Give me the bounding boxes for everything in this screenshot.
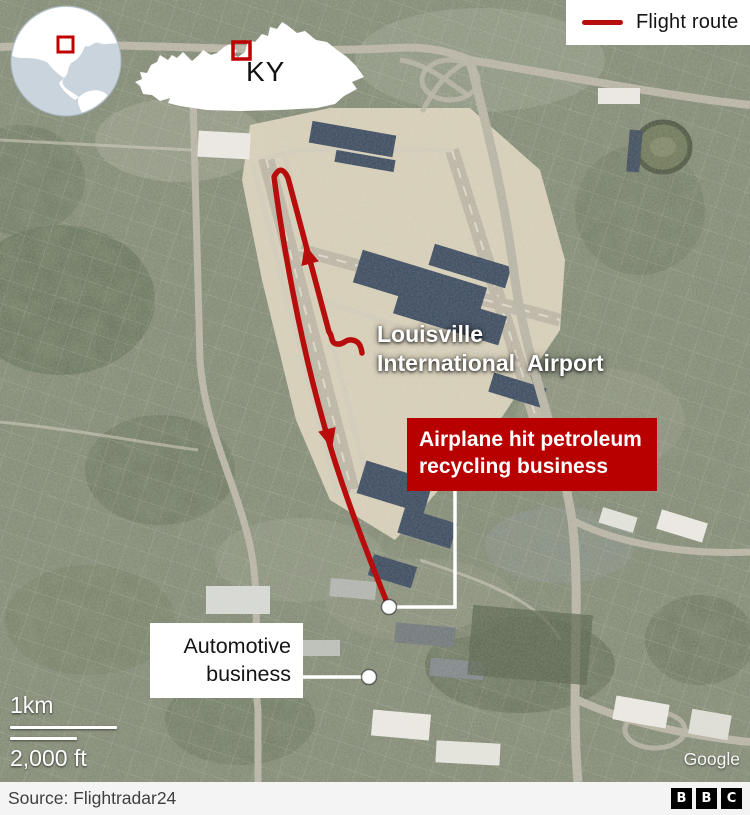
texture-overlay xyxy=(0,0,750,782)
bbc-logo-block-3: C xyxy=(721,788,742,809)
legend: Flight route xyxy=(566,0,750,45)
automotive-callout-line2: business xyxy=(162,661,291,689)
crash-callout: Airplane hit petroleum recycling busines… xyxy=(407,418,657,491)
satellite-map: Flight route KY Louisville International… xyxy=(0,0,750,782)
crash-location-marker xyxy=(382,600,397,615)
airport-label: Louisville International Airport xyxy=(377,320,604,378)
scale-metric-label: 1km xyxy=(10,692,53,719)
legend-label: Flight route xyxy=(636,11,738,34)
flight-route-swatch-icon xyxy=(582,20,623,25)
scale-metric-line xyxy=(10,726,117,729)
state-abbr-label: KY xyxy=(246,56,285,88)
bbc-logo: B B C xyxy=(671,788,742,809)
scale-imperial-label: 2,000 ft xyxy=(10,745,87,772)
automotive-callout-line1: Automotive xyxy=(162,633,291,661)
source-credit: Source: Flightradar24 xyxy=(8,788,176,809)
automotive-callout: Automotive business xyxy=(150,623,303,698)
airport-label-line1: Louisville xyxy=(377,320,604,349)
bbc-map-graphic: Flight route KY Louisville International… xyxy=(0,0,750,815)
bbc-logo-block-2: B xyxy=(696,788,717,809)
airport-label-line2: International Airport xyxy=(377,349,604,378)
imagery-credit: Google xyxy=(684,749,740,770)
scale-imperial-line xyxy=(10,737,77,740)
bbc-logo-block-1: B xyxy=(671,788,692,809)
map-canvas xyxy=(0,0,750,782)
footer: Source: Flightradar24 B B C xyxy=(0,782,750,815)
scale-bar: 1km 2,000 ft xyxy=(10,692,53,719)
automotive-location-marker xyxy=(362,670,377,685)
